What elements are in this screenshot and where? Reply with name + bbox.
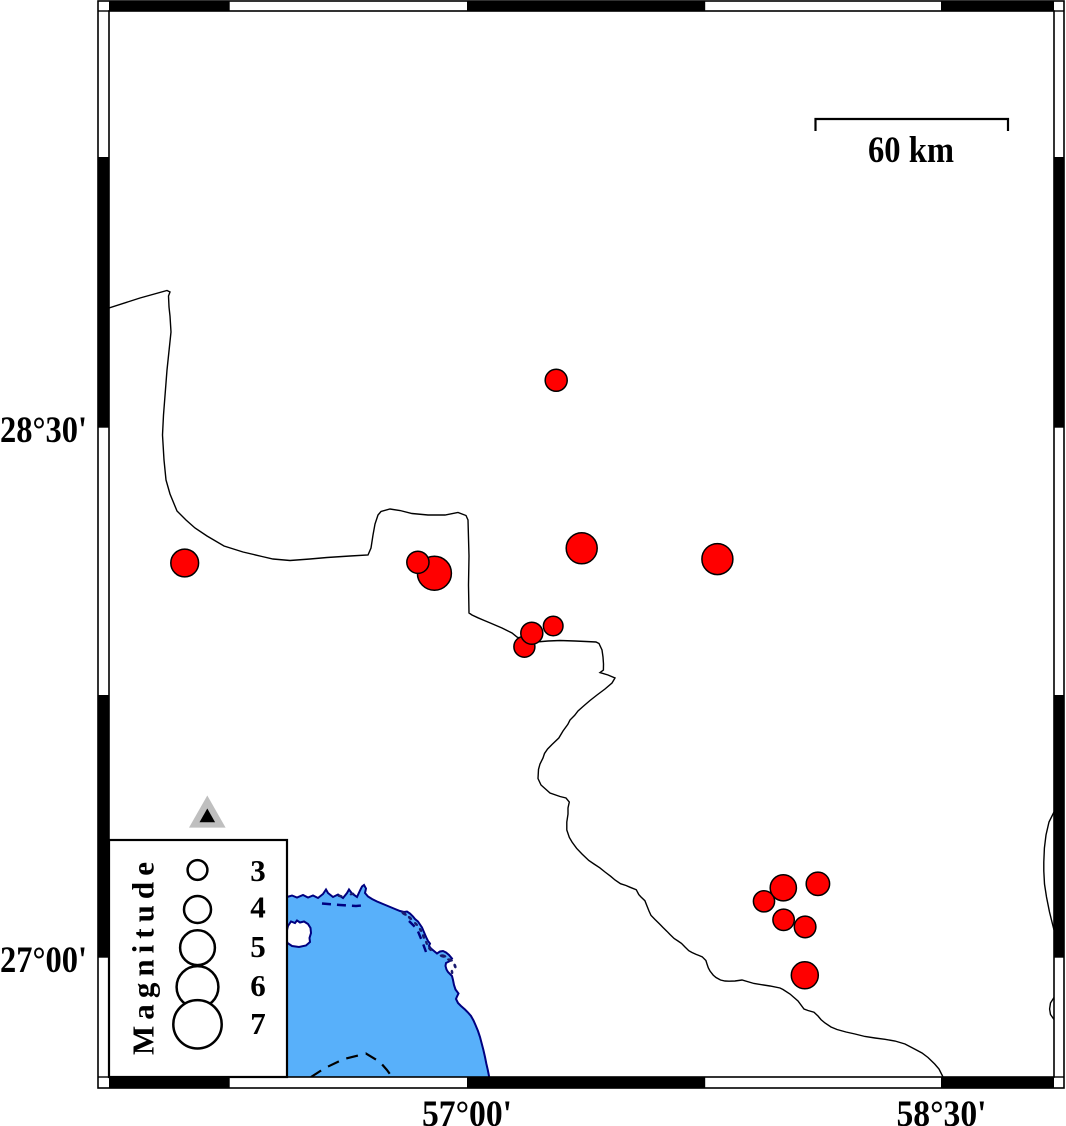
svg-text:27°00': 27°00': [0, 940, 87, 981]
svg-text:58°30': 58°30': [897, 1094, 987, 1126]
svg-text:6: 6: [250, 968, 266, 1003]
svg-text:3: 3: [250, 853, 266, 888]
svg-text:60 km: 60 km: [868, 130, 954, 171]
svg-text:4: 4: [250, 890, 266, 925]
svg-text:28°30': 28°30': [0, 410, 87, 451]
svg-text:7: 7: [250, 1006, 266, 1041]
svg-text:5: 5: [250, 929, 266, 964]
svg-text:57°00': 57°00': [422, 1094, 512, 1126]
